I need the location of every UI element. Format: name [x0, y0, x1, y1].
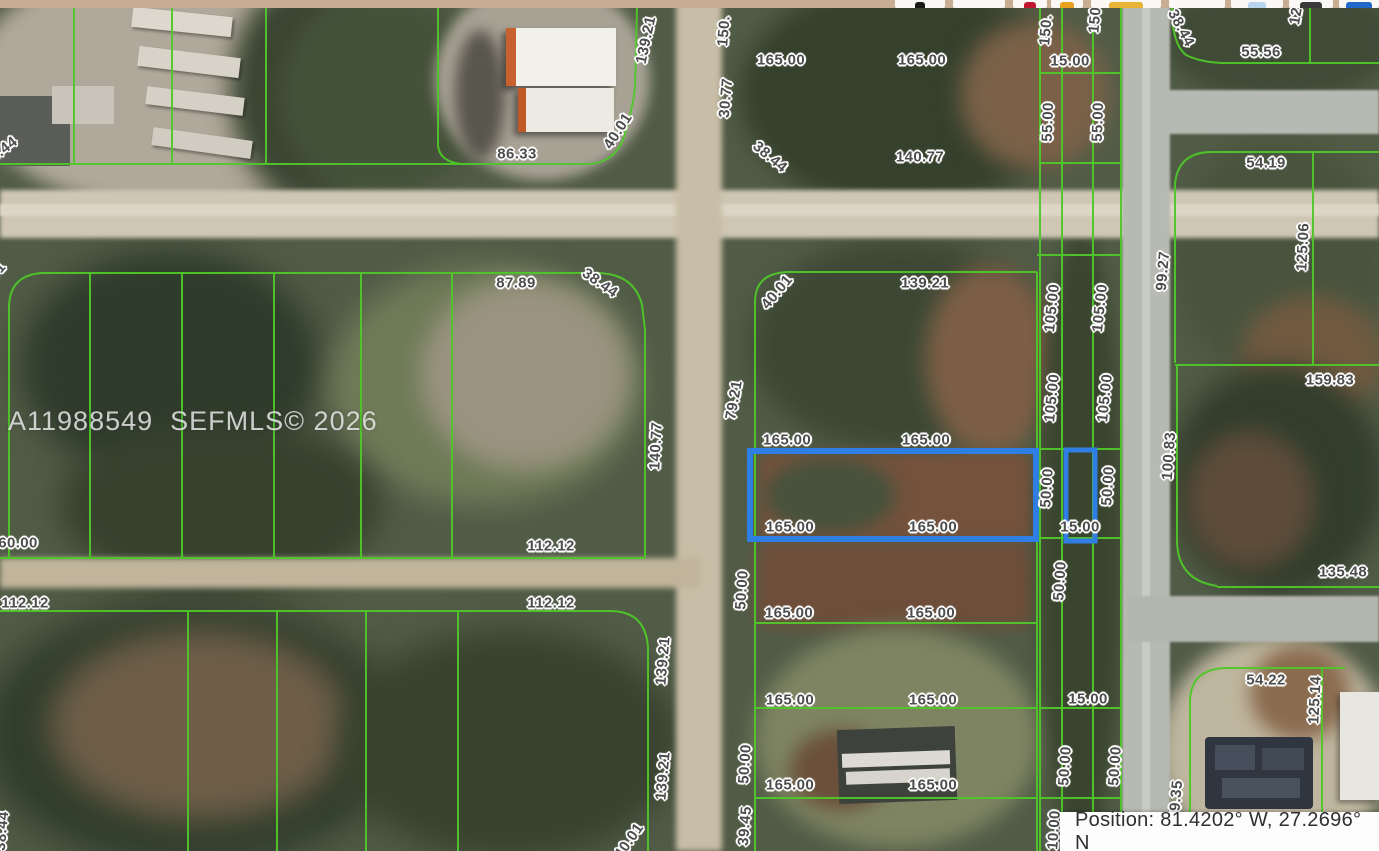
- parcel-dimension-label: 165.00: [907, 606, 955, 621]
- ruler-button[interactable]: [1051, 0, 1083, 8]
- panel-button[interactable]: [1231, 0, 1283, 8]
- map-pin-icon: [1024, 2, 1036, 8]
- panel-icon: [1248, 2, 1266, 8]
- map-pin-button[interactable]: [1013, 0, 1047, 8]
- parcel-dimension-label: 150.: [715, 15, 733, 47]
- parcel-dimension-label: 165.00: [898, 53, 946, 68]
- parcel-dimension-label: 15.00: [1068, 692, 1108, 707]
- key-icon: [1109, 2, 1143, 8]
- toolbar-button[interactable]: [953, 0, 1005, 8]
- menu-icon: [1300, 2, 1322, 8]
- parcel-dimension-label: 50.00: [1051, 561, 1069, 601]
- parcel-dimension-label: 150: [1086, 6, 1103, 33]
- mls-watermark: A11988549 SEFMLS© 2026: [8, 406, 378, 437]
- globe-button[interactable]: [1339, 0, 1379, 8]
- key-button[interactable]: [1091, 0, 1161, 8]
- parcel-dimension-label: 135.48: [1319, 565, 1367, 580]
- parcel-dimension-label: 159.83: [1306, 373, 1354, 388]
- parcel-dimension-label: 165.00: [766, 520, 814, 535]
- parcel-dimension-label: 15.00: [1060, 520, 1100, 535]
- parcel-dimension-label: 125.14: [1306, 675, 1324, 724]
- parcel-dimension-label: 60.00: [0, 536, 38, 551]
- toolbar-button[interactable]: [1169, 0, 1225, 8]
- parcel-dimension-label: 30.77: [717, 78, 735, 119]
- parcel-dimension-label: 50.00: [1099, 466, 1117, 506]
- parcel-dimension-label: 139.21: [901, 276, 949, 291]
- parcel-dimension-label: 165.00: [766, 693, 814, 708]
- parcel-dimension-label: 112.12: [527, 596, 574, 611]
- position-coordinates: Position: 81.4202° W, 27.2696° N: [1075, 809, 1379, 851]
- parcel-dimension-label: 165.00: [765, 606, 813, 621]
- menu-button[interactable]: [1289, 0, 1333, 8]
- parcel-dimension-label: 165.00: [757, 53, 805, 68]
- parcel-dimension-label: 139.21: [653, 751, 672, 800]
- parcel-dimension-label: 39.45: [736, 806, 754, 847]
- parcel-dimension-label: 165.00: [909, 693, 957, 708]
- parcel-dimension-label: 165.00: [763, 433, 811, 448]
- parcel-dimension-label: 55.00: [1040, 102, 1056, 142]
- location-marker-icon: [915, 2, 925, 8]
- parcel-dimension-label: 50.00: [736, 744, 754, 784]
- parcel-dimension-label: 139.21: [653, 636, 672, 685]
- parcel-dimension-label: 50.00: [1106, 746, 1124, 786]
- parcel-dimension-label: 15.00: [1050, 54, 1090, 69]
- parcel-dimension-label: 54.22: [1246, 673, 1286, 688]
- parcel-dimension-label: 140.77: [647, 421, 665, 470]
- parcel-dimension-label: 140.77: [896, 150, 944, 165]
- parcel-dimension-label: 87.89: [496, 276, 536, 291]
- parcel-dimension-label: 54.19: [1246, 156, 1286, 171]
- parcel-dimension-label: 165.00: [909, 520, 957, 535]
- parcel-dimension-label: 112.12: [1, 596, 48, 611]
- parcel-dimension-label: 55.00: [1090, 102, 1106, 142]
- position-bar: Position: 81.4202° W, 27.2696° N: [1060, 812, 1379, 851]
- ruler-icon: [1060, 2, 1074, 8]
- parcel-dimension-label: 112.12: [527, 539, 574, 554]
- parcel-dimension-label: 12: [1287, 6, 1305, 26]
- parcel-dimension-label: 99.27: [1154, 251, 1172, 292]
- parcel-dimension-label: 50.00: [1038, 468, 1056, 508]
- parcel-dimension-label: 86.33: [497, 147, 537, 162]
- parcel-dimension-label: 165.00: [766, 778, 814, 793]
- parcel-dimension-label: 150.: [1037, 14, 1055, 46]
- parcel-dimension-label: 100.83: [1160, 431, 1178, 480]
- location-marker-button[interactable]: [895, 0, 945, 8]
- map-viewer: 139.21150.165.00165.00150.15015.0038.441…: [0, 0, 1379, 851]
- browser-toolbar: [0, 0, 1379, 8]
- parcel-dimension-label: 50.00: [1056, 746, 1074, 786]
- parcel-dimension-label: 50.00: [733, 570, 751, 610]
- globe-icon: [1346, 2, 1372, 8]
- parcel-dimension-label: 55.56: [1241, 45, 1281, 60]
- parcel-dimension-label: 165.00: [909, 778, 957, 793]
- parcel-dimension-label: 125.06: [1294, 222, 1312, 271]
- parcel-dimension-label: 165.00: [902, 433, 950, 448]
